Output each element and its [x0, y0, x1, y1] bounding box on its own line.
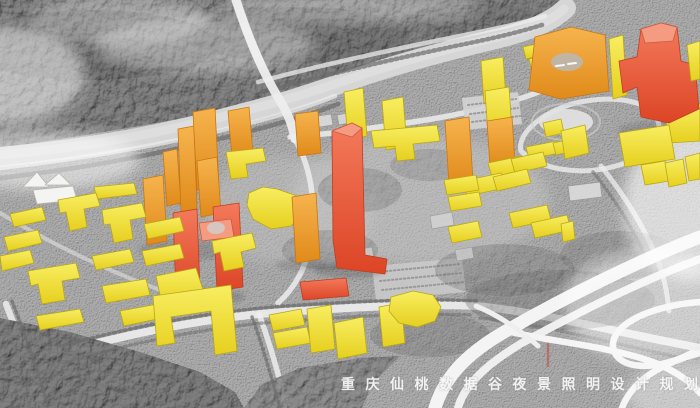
building-y	[561, 221, 575, 242]
building-y	[561, 125, 589, 159]
building-y	[334, 317, 367, 359]
building-o	[292, 193, 320, 263]
masterplan-rendering: 重庆仙桃数据谷夜景照明设计规划	[0, 0, 700, 408]
building-r	[300, 278, 349, 300]
overlays	[551, 53, 583, 71]
building-o	[445, 117, 473, 185]
overlays	[207, 222, 225, 234]
scene-svg	[0, 0, 700, 408]
building-o	[295, 111, 321, 156]
building-y	[665, 159, 687, 187]
building-y	[641, 161, 669, 185]
building-y	[619, 125, 675, 167]
caption-title: 重庆仙桃数据谷夜景照明设计规划	[341, 374, 700, 394]
overlays	[568, 63, 576, 64]
overlays	[556, 65, 564, 66]
building-y	[307, 305, 335, 353]
